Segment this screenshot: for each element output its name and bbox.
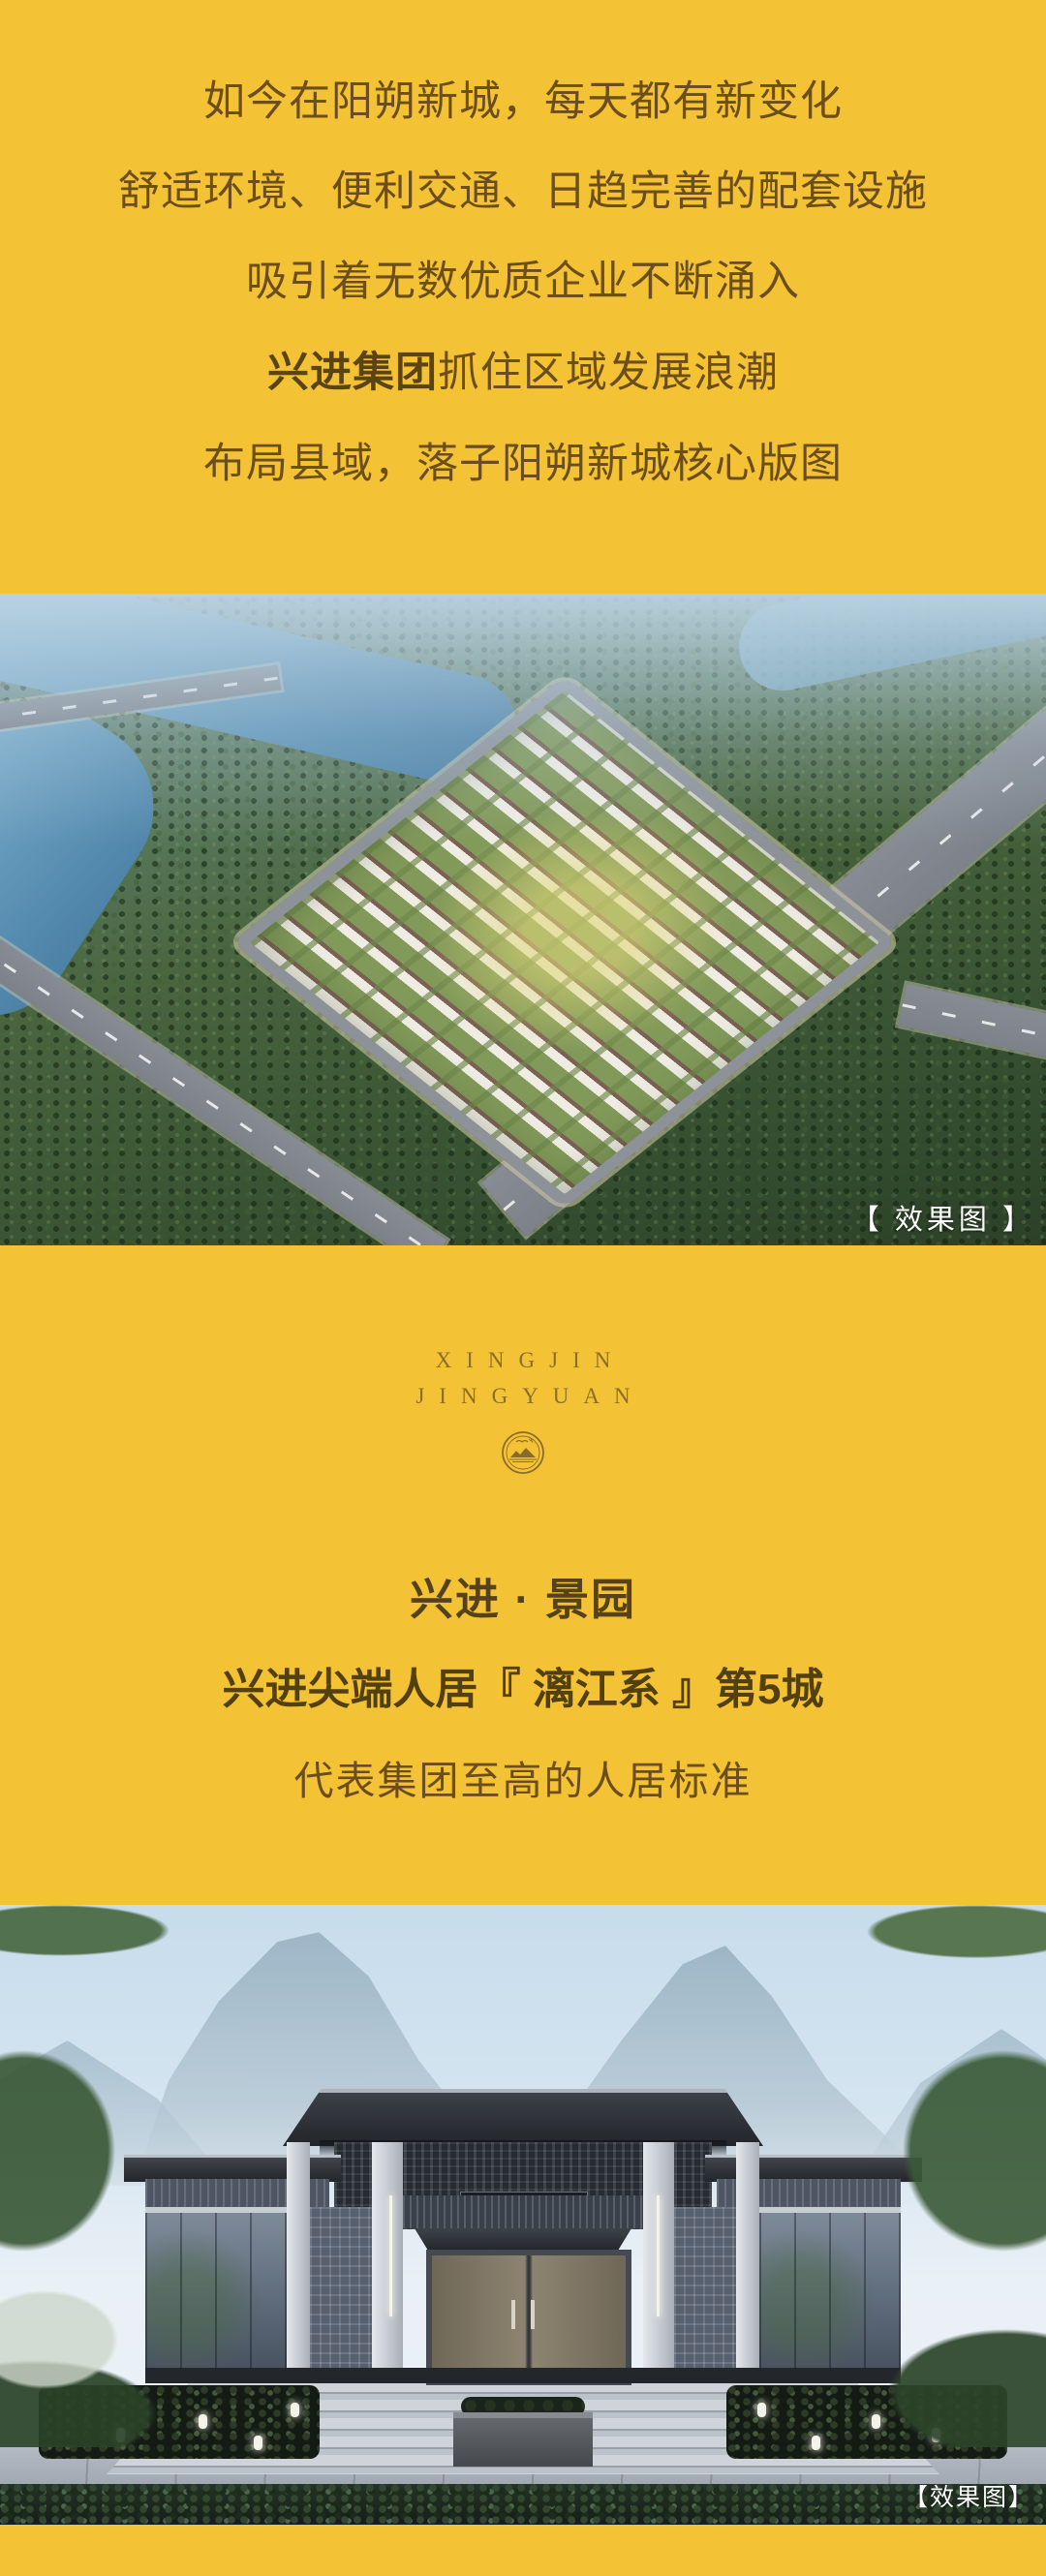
door-handle-right (531, 2300, 535, 2329)
door-canopy (415, 2228, 631, 2250)
mountain-river-seal-icon (500, 1429, 546, 1476)
lattice-glass-left (310, 2207, 372, 2374)
building-plinth (145, 2368, 901, 2383)
entrance-render-image: 兴进 · 景园 (0, 1905, 1046, 2525)
intro-line-3: 吸引着无数优质企业不断涌入 (0, 261, 1046, 303)
road-stub-right (898, 984, 1046, 1059)
trees-left (0, 1905, 242, 2447)
intro-line-2: 舒适环境、便利交通、日趋完善的配套设施 (0, 171, 1046, 213)
bronze-double-doors (426, 2250, 631, 2385)
garden-lamp (757, 2403, 766, 2417)
garden-lamp (291, 2403, 299, 2417)
column-outer-right (736, 2142, 759, 2379)
column-inner-left (372, 2142, 403, 2379)
bottom-yellow-strip (0, 2525, 1046, 2576)
column-light-right (657, 2195, 660, 2316)
intro-line-4-rest: 抓住区域发展浪潮 (438, 350, 779, 396)
stone-planter (453, 2412, 593, 2467)
brand-latin-line-2: JINGYUAN (0, 1385, 1046, 1407)
intro-line-4: 兴进集团抓住区域发展浪潮 (0, 353, 1046, 394)
intro-line-4-bold: 兴进集团 (267, 350, 438, 396)
promo-poster: 如今在阳朔新城，每天都有新变化 舒适环境、便利交通、日趋完善的配套设施 吸引着无… (0, 0, 1046, 2576)
project-title: 兴进 · 景园 (0, 1578, 1046, 1621)
render-type-caption: 【效果图】 (904, 2478, 1034, 2513)
project-subtitle: 兴进尖端人居『 漓江系 』第5城 (0, 1669, 1046, 1711)
garden-lamp (254, 2436, 262, 2450)
project-tagline: 代表集团至高的人居标准 (0, 1762, 1046, 1801)
door-transom-lattice (403, 2195, 643, 2228)
intro-section: 如今在阳朔新城，每天都有新变化 舒适环境、便利交通、日趋完善的配套设施 吸引着无… (0, 0, 1046, 594)
gate-main-roof (283, 2089, 763, 2146)
lattice-glass-right (674, 2207, 736, 2374)
intro-line-5: 布局县域，落子阳朔新城核心版图 (0, 444, 1046, 485)
trees-right (804, 1905, 1046, 2447)
aerial-render-image: 【 效果图 】 (0, 594, 1046, 1245)
river-far (731, 594, 1046, 699)
brand-latin-line-1: XINGJIN (0, 1349, 1046, 1371)
intro-line-1: 如今在阳朔新城，每天都有新变化 (0, 81, 1046, 123)
column-outer-left (287, 2142, 310, 2379)
brand-section: XINGJIN JINGYUAN 兴进 · 景园 兴进尖端人居『 漓江系 』第5… (0, 1245, 1046, 1905)
door-handle-left (511, 2300, 515, 2329)
foreground-hedge (0, 2484, 1046, 2525)
render-type-caption: 【 效果图 】 (851, 1197, 1034, 1238)
column-light-left (389, 2195, 392, 2316)
